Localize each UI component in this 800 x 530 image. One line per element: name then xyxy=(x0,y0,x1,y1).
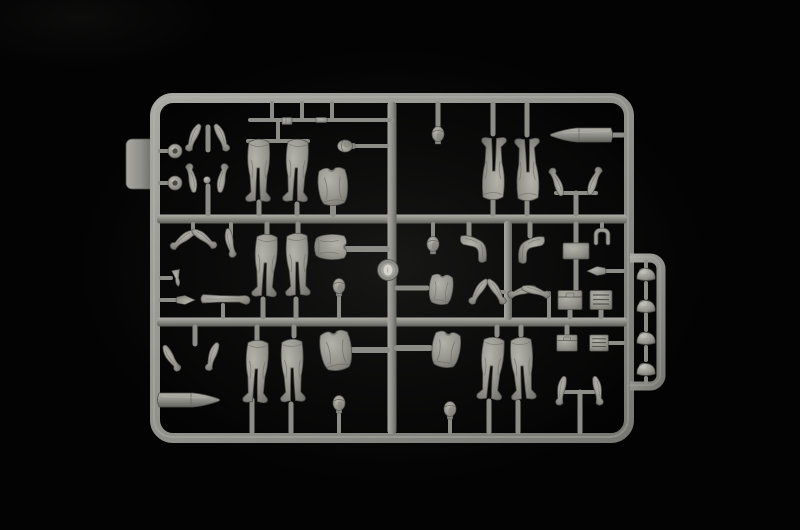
ammo-box xyxy=(557,335,577,351)
small-knob xyxy=(204,177,211,184)
photo-canvas xyxy=(0,0,800,530)
vertical-rail xyxy=(504,221,512,320)
small-fitting xyxy=(316,118,328,123)
sprue-photo xyxy=(0,0,800,530)
radio-box xyxy=(590,291,612,310)
figure-torso xyxy=(317,167,349,207)
background xyxy=(0,0,800,530)
figure-torso xyxy=(314,234,346,259)
round-base-disc xyxy=(378,260,399,281)
ammo-box xyxy=(558,291,582,310)
equipment-box xyxy=(563,243,589,259)
round-canteen xyxy=(168,176,182,190)
radio-box xyxy=(590,335,609,351)
round-canteen xyxy=(168,144,182,158)
small-fitting xyxy=(282,118,292,125)
